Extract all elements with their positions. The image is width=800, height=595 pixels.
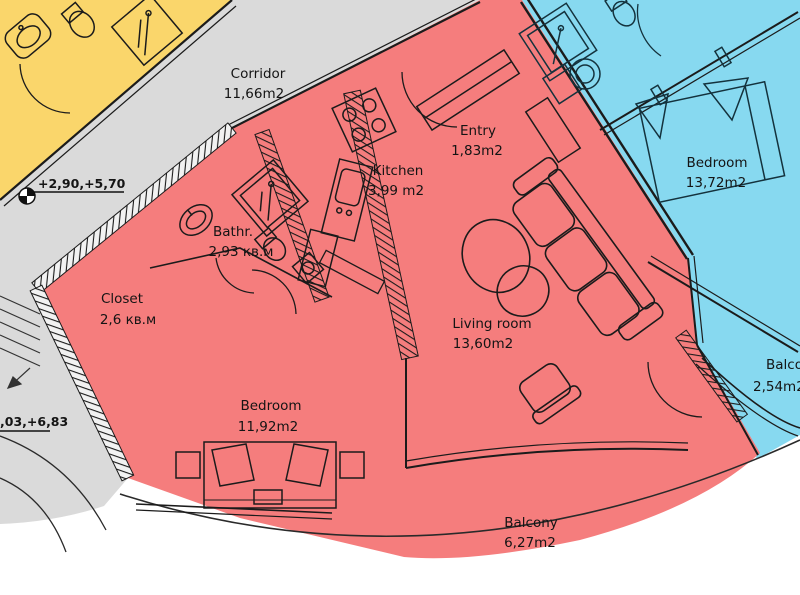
floor-plan-canvas: +2,90,+5,70 ,03,+6,83 Corridor 11,66m2 E… <box>0 0 800 595</box>
bathroom-area: 2,93 кв.м <box>209 244 274 260</box>
corridor-label: Corridor <box>231 66 286 82</box>
living-room-area: 13,60m2 <box>453 336 513 352</box>
neighbor-balcony-area: 2,54m2 <box>753 379 800 395</box>
kitchen-area: 3,99 m2 <box>368 183 424 199</box>
level-mark-lower-text: ,03,+6,83 <box>0 414 68 429</box>
level-mark-upper-text: +2,90,+5,70 <box>38 176 126 191</box>
level-marker-lower: ,03,+6,83 <box>0 414 68 431</box>
living-room-label: Living room <box>452 316 531 332</box>
bedroom-label: Bedroom <box>240 398 301 414</box>
closet-label: Closet <box>101 291 143 307</box>
closet-area: 2,6 кв.м <box>100 312 156 328</box>
neighbor-balcony-label: Balcony <box>766 357 800 373</box>
neighbor-bedroom-label: Bedroom <box>686 155 747 171</box>
floor-plan-svg: +2,90,+5,70 ,03,+6,83 Corridor 11,66m2 E… <box>0 0 800 595</box>
balcony-label: Balcony <box>504 515 558 531</box>
corridor-area: 11,66m2 <box>224 86 284 102</box>
balcony-area: 6,27m2 <box>504 535 556 551</box>
kitchen-label: Kitchen <box>373 163 424 179</box>
entry-area: 1,83m2 <box>451 143 503 159</box>
entry-label: Entry <box>460 123 496 139</box>
neighbor-bedroom-area: 13,72m2 <box>686 175 746 191</box>
bedroom-area: 11,92m2 <box>238 419 298 435</box>
bathroom-label: Bathr. <box>213 224 253 240</box>
